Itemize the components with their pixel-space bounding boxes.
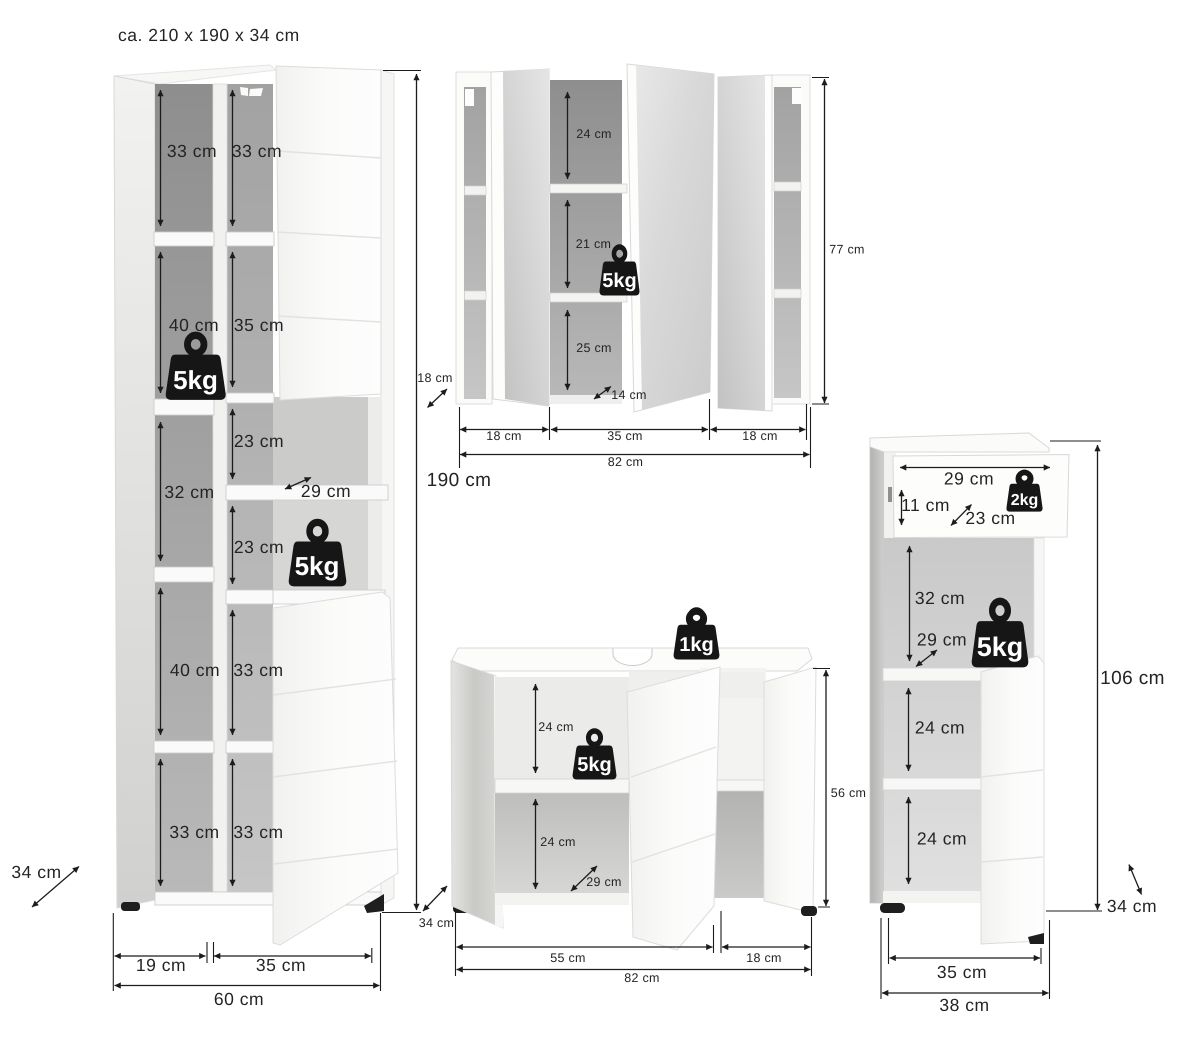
svg-text:32 cm: 32 cm xyxy=(164,482,214,502)
svg-text:77 cm: 77 cm xyxy=(829,243,865,257)
svg-text:24 cm: 24 cm xyxy=(540,835,576,849)
svg-text:29 cm: 29 cm xyxy=(301,481,351,501)
svg-text:34 cm: 34 cm xyxy=(11,862,61,882)
svg-text:19 cm: 19 cm xyxy=(136,955,186,975)
svg-text:38 cm: 38 cm xyxy=(939,995,989,1015)
svg-text:35 cm: 35 cm xyxy=(607,429,643,443)
svg-text:25 cm: 25 cm xyxy=(576,341,612,355)
svg-text:32 cm: 32 cm xyxy=(915,588,965,608)
svg-text:24 cm: 24 cm xyxy=(917,829,967,849)
svg-text:35 cm: 35 cm xyxy=(937,962,987,982)
svg-text:60 cm: 60 cm xyxy=(214,989,264,1009)
svg-text:40 cm: 40 cm xyxy=(169,315,219,335)
svg-text:33 cm: 33 cm xyxy=(167,141,217,161)
svg-text:23 cm: 23 cm xyxy=(234,537,284,557)
svg-text:11 cm: 11 cm xyxy=(901,495,950,515)
svg-text:35 cm: 35 cm xyxy=(256,955,306,975)
svg-text:18 cm: 18 cm xyxy=(417,371,453,385)
svg-text:23 cm: 23 cm xyxy=(965,508,1015,528)
svg-text:40 cm: 40 cm xyxy=(170,660,220,680)
svg-text:29 cm: 29 cm xyxy=(944,469,994,489)
svg-text:5kg: 5kg xyxy=(577,754,611,776)
svg-text:24 cm: 24 cm xyxy=(538,720,574,734)
svg-text:21 cm: 21 cm xyxy=(576,237,612,251)
svg-text:5kg: 5kg xyxy=(977,632,1024,662)
svg-text:106 cm: 106 cm xyxy=(1100,668,1165,689)
svg-text:33 cm: 33 cm xyxy=(232,141,282,161)
svg-text:5kg: 5kg xyxy=(173,365,218,395)
svg-text:35 cm: 35 cm xyxy=(234,315,284,335)
svg-text:5kg: 5kg xyxy=(602,270,636,292)
svg-text:2kg: 2kg xyxy=(1011,492,1039,509)
svg-text:18 cm: 18 cm xyxy=(746,951,782,965)
svg-text:5kg: 5kg xyxy=(295,551,340,581)
svg-text:24 cm: 24 cm xyxy=(915,718,965,738)
svg-text:29 cm: 29 cm xyxy=(586,875,622,889)
svg-text:29 cm: 29 cm xyxy=(917,630,967,650)
svg-text:33 cm: 33 cm xyxy=(233,822,283,842)
svg-text:18 cm: 18 cm xyxy=(742,429,778,443)
svg-text:24 cm: 24 cm xyxy=(576,127,612,141)
svg-text:190 cm: 190 cm xyxy=(427,470,492,491)
svg-text:1kg: 1kg xyxy=(679,634,713,656)
svg-text:14 cm: 14 cm xyxy=(611,388,647,402)
svg-text:56 cm: 56 cm xyxy=(831,786,867,800)
svg-text:23 cm: 23 cm xyxy=(234,431,284,451)
svg-text:33 cm: 33 cm xyxy=(169,822,219,842)
svg-text:82 cm: 82 cm xyxy=(608,455,644,469)
svg-text:34 cm: 34 cm xyxy=(419,916,455,930)
svg-text:33 cm: 33 cm xyxy=(233,660,283,680)
svg-text:34 cm: 34 cm xyxy=(1107,896,1157,916)
svg-text:ca. 210 x 190 x 34 cm: ca. 210 x 190 x 34 cm xyxy=(118,25,300,45)
svg-text:55 cm: 55 cm xyxy=(550,951,586,965)
svg-text:18 cm: 18 cm xyxy=(486,429,522,443)
svg-text:82 cm: 82 cm xyxy=(624,971,660,985)
